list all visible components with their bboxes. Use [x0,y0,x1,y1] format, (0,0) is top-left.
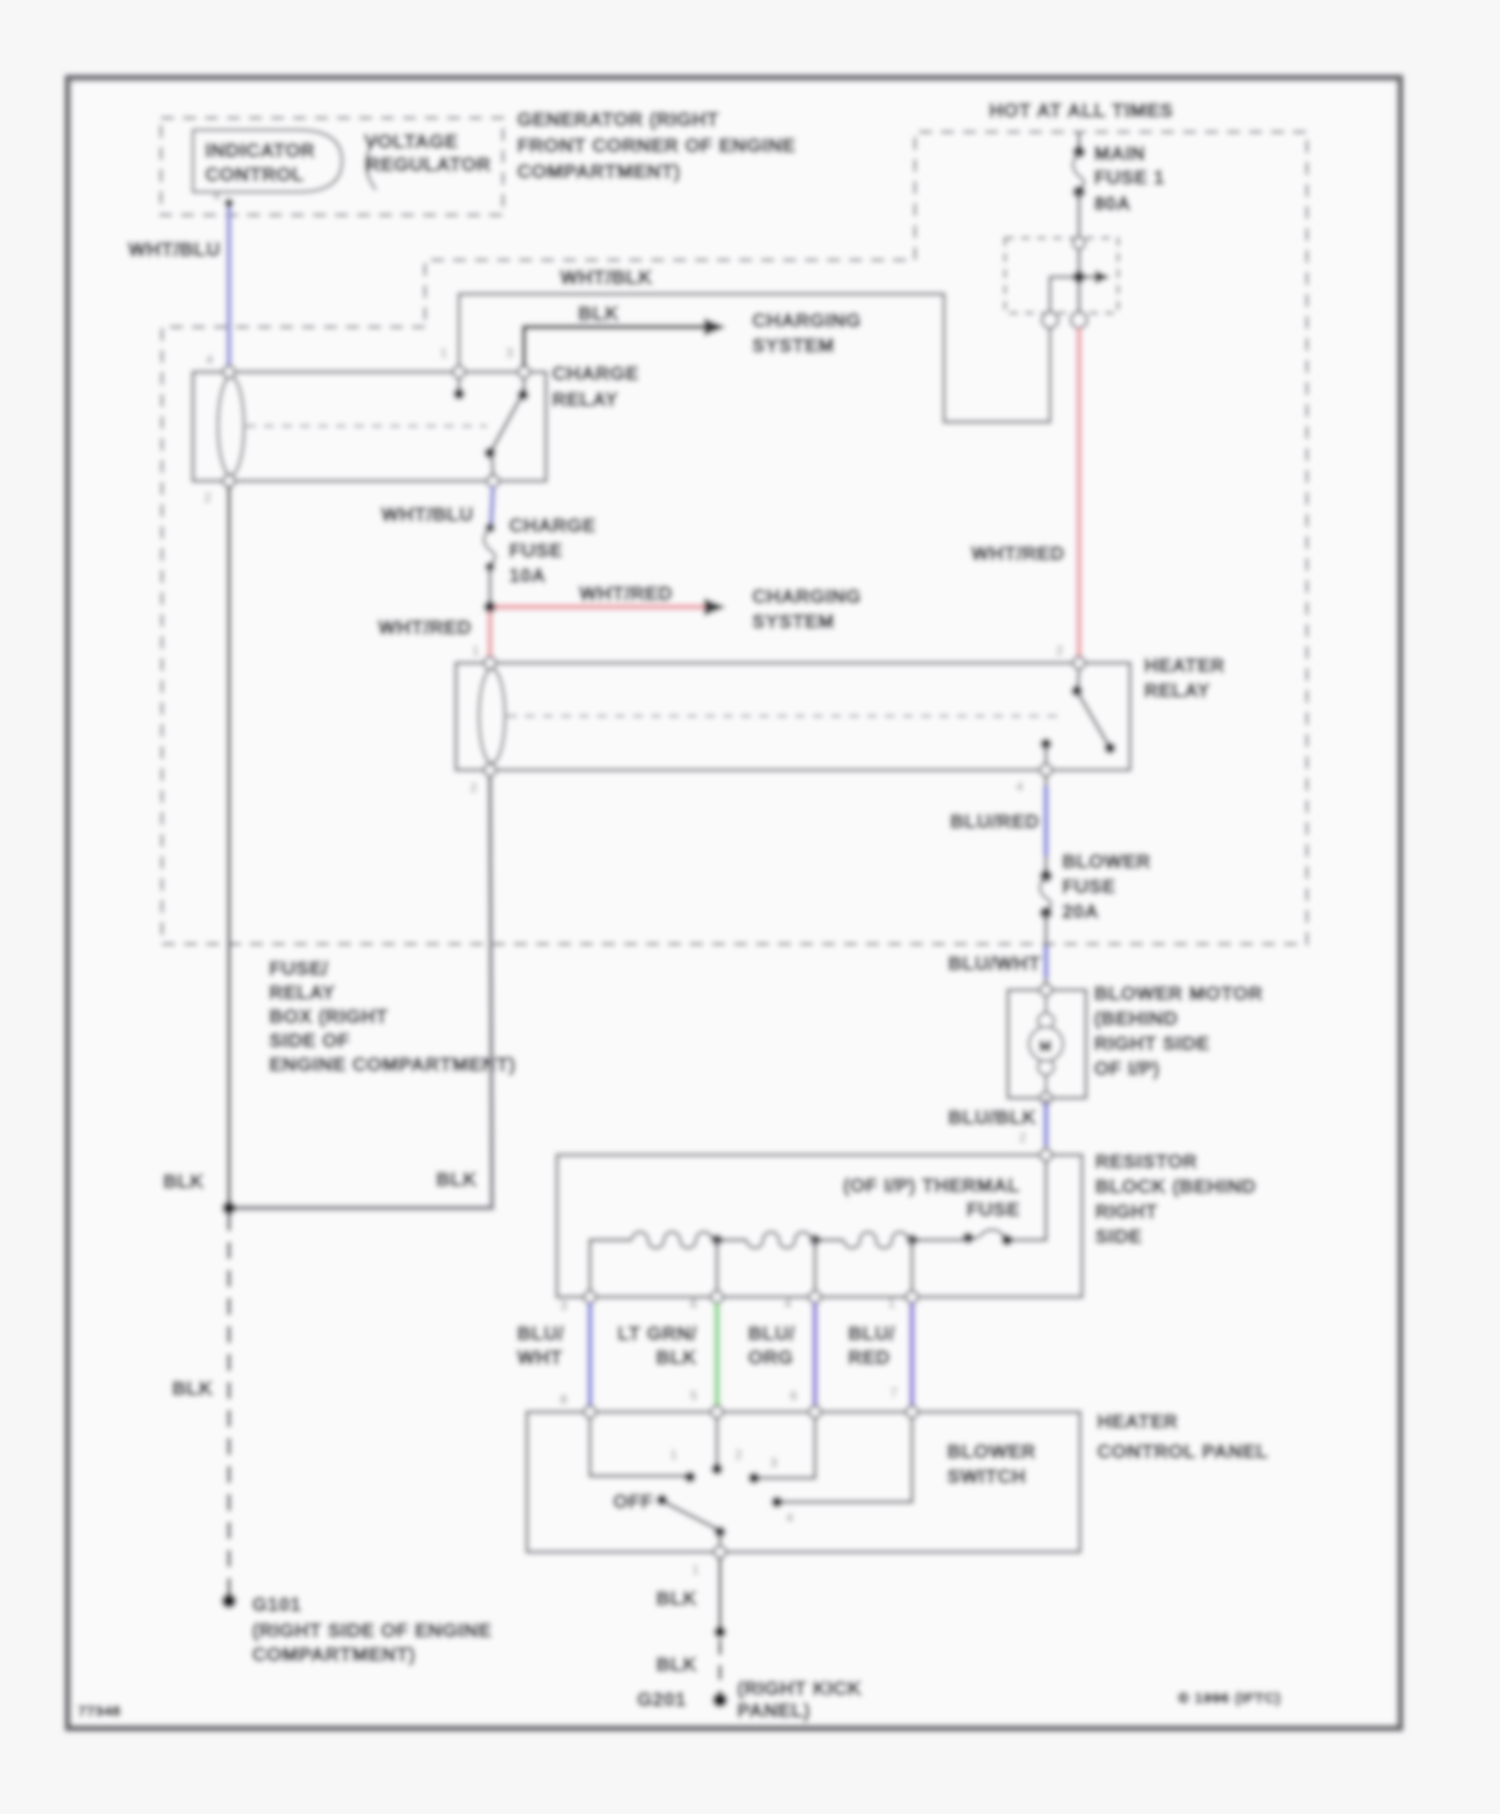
svg-text:8: 8 [560,1392,568,1407]
svg-text:FUSE 1: FUSE 1 [1094,168,1165,189]
svg-text:BLU/BLK: BLU/BLK [948,1108,1036,1129]
svg-text:CONTROL PANEL: CONTROL PANEL [1097,1442,1268,1463]
svg-text:77348: 77348 [78,1704,121,1720]
svg-text:BLOWER: BLOWER [947,1442,1036,1463]
svg-text:FUSE/: FUSE/ [269,959,329,980]
svg-text:BLK: BLK [656,1348,697,1369]
svg-text:SYSTEM: SYSTEM [752,612,835,633]
svg-text:WHT/BLU: WHT/BLU [128,240,221,261]
svg-text:GENERATOR (RIGHT: GENERATOR (RIGHT [517,110,719,131]
svg-text:BLOWER MOTOR: BLOWER MOTOR [1094,984,1263,1005]
svg-text:COMPARTMENT): COMPARTMENT) [517,162,681,183]
svg-text:COMPARTMENT): COMPARTMENT) [252,1645,416,1666]
svg-text:FUSE: FUSE [966,1200,1020,1221]
svg-text:RELAY: RELAY [269,983,335,1004]
svg-text:WHT/BLK: WHT/BLK [560,268,653,289]
svg-text:20A: 20A [1062,902,1099,923]
svg-text:CONTROL: CONTROL [205,165,304,186]
svg-text:RELAY: RELAY [1144,681,1210,702]
svg-text:2: 2 [735,1447,743,1462]
svg-text:1: 1 [692,1562,700,1577]
svg-text:ENGINE COMPARTMENT): ENGINE COMPARTMENT) [269,1055,516,1076]
svg-text:G101: G101 [252,1595,301,1616]
svg-text:CHARGING: CHARGING [752,587,861,608]
svg-text:80A: 80A [1094,194,1131,215]
svg-text:REGULATOR: REGULATOR [366,155,491,176]
svg-text:1: 1 [440,345,448,360]
svg-text:WHT/BLU: WHT/BLU [381,505,474,526]
svg-text:BLU/: BLU/ [848,1324,895,1345]
svg-text:LT GRN/: LT GRN/ [617,1324,697,1345]
svg-text:SIDE OF: SIDE OF [269,1031,350,1052]
svg-text:SYSTEM: SYSTEM [752,336,835,357]
svg-text:3: 3 [770,1455,778,1470]
svg-text:BLK: BLK [172,1379,213,1400]
svg-text:HOT AT ALL TIMES: HOT AT ALL TIMES [989,101,1173,122]
svg-text:BLU/: BLU/ [748,1324,795,1345]
svg-text:BLK: BLK [163,1172,204,1193]
svg-text:1: 1 [888,1296,896,1311]
svg-text:2: 2 [204,490,212,505]
svg-text:OF I/P): OF I/P) [1094,1059,1160,1080]
svg-text:3: 3 [506,345,514,360]
svg-text:6: 6 [690,1296,698,1311]
svg-text:BLU/RED: BLU/RED [950,812,1040,833]
svg-text:1: 1 [472,643,480,658]
svg-text:(RIGHT SIDE OF ENGINE: (RIGHT SIDE OF ENGINE [252,1621,492,1642]
svg-text:2: 2 [1019,1130,1027,1145]
svg-text:INDICATOR: INDICATOR [205,141,315,162]
svg-text:BLU/: BLU/ [517,1324,564,1345]
svg-text:BLK: BLK [656,1589,697,1610]
svg-text:BLU/WHT: BLU/WHT [948,954,1041,975]
svg-text:WHT/RED: WHT/RED [378,618,472,639]
svg-text:© 1996 (IFTC): © 1996 (IFTC) [1178,1690,1281,1707]
svg-text:BLOWER: BLOWER [1062,852,1151,873]
svg-text:2: 2 [1056,643,1064,658]
svg-text:WHT/RED: WHT/RED [971,544,1065,565]
svg-text:ORG: ORG [748,1348,794,1369]
svg-text:3: 3 [560,1298,568,1313]
svg-text:RELAY: RELAY [552,390,618,411]
svg-text:(RIGHT KICK: (RIGHT KICK [737,1679,862,1700]
svg-text:4: 4 [784,1296,792,1311]
svg-text:RIGHT: RIGHT [1095,1202,1158,1223]
svg-text:CHARGE: CHARGE [509,516,596,537]
svg-text:4: 4 [786,1510,794,1525]
svg-text:MAIN: MAIN [1094,144,1145,165]
svg-text:1: 1 [670,1447,678,1462]
svg-text:M: M [1039,1038,1052,1055]
svg-text:WHT: WHT [517,1348,563,1369]
svg-text:BLK: BLK [656,1655,697,1676]
svg-text:BLK: BLK [436,1170,477,1191]
svg-text:BOX (RIGHT: BOX (RIGHT [269,1007,388,1028]
svg-text:4: 4 [1016,779,1024,794]
svg-text:(BEHIND: (BEHIND [1094,1009,1178,1030]
svg-text:HEATER: HEATER [1097,1412,1178,1433]
svg-text:BLK: BLK [578,304,619,325]
svg-text:FUSE: FUSE [1062,877,1116,898]
svg-text:5: 5 [690,1388,698,1403]
svg-text:SIDE: SIDE [1095,1227,1142,1248]
svg-text:BLOCK (BEHIND: BLOCK (BEHIND [1095,1177,1256,1198]
svg-text:RED: RED [848,1348,890,1369]
svg-text:SWITCH: SWITCH [947,1467,1026,1488]
svg-text:FRONT CORNER OF ENGINE: FRONT CORNER OF ENGINE [517,136,796,157]
svg-text:4: 4 [213,188,221,203]
svg-text:HEATER: HEATER [1144,656,1225,677]
svg-text:4: 4 [206,352,214,367]
svg-text:PANEL): PANEL) [737,1701,811,1722]
svg-text:CHARGE: CHARGE [552,364,639,385]
svg-text:6: 6 [790,1388,798,1403]
svg-text:(OF I/P) THERMAL: (OF I/P) THERMAL [843,1176,1020,1197]
svg-text:FUSE: FUSE [509,541,563,562]
svg-text:VOLTAGE: VOLTAGE [364,132,458,153]
svg-text:2: 2 [470,780,478,795]
svg-text:CHARGING: CHARGING [752,311,861,332]
svg-text:RESISTOR: RESISTOR [1095,1152,1198,1173]
svg-text:10A: 10A [509,566,546,587]
svg-text:RIGHT SIDE: RIGHT SIDE [1094,1034,1210,1055]
svg-text:7: 7 [890,1385,898,1400]
svg-text:OFF: OFF [613,1492,653,1513]
svg-text:G201: G201 [637,1690,686,1711]
svg-text:WHT/RED: WHT/RED [579,584,673,605]
